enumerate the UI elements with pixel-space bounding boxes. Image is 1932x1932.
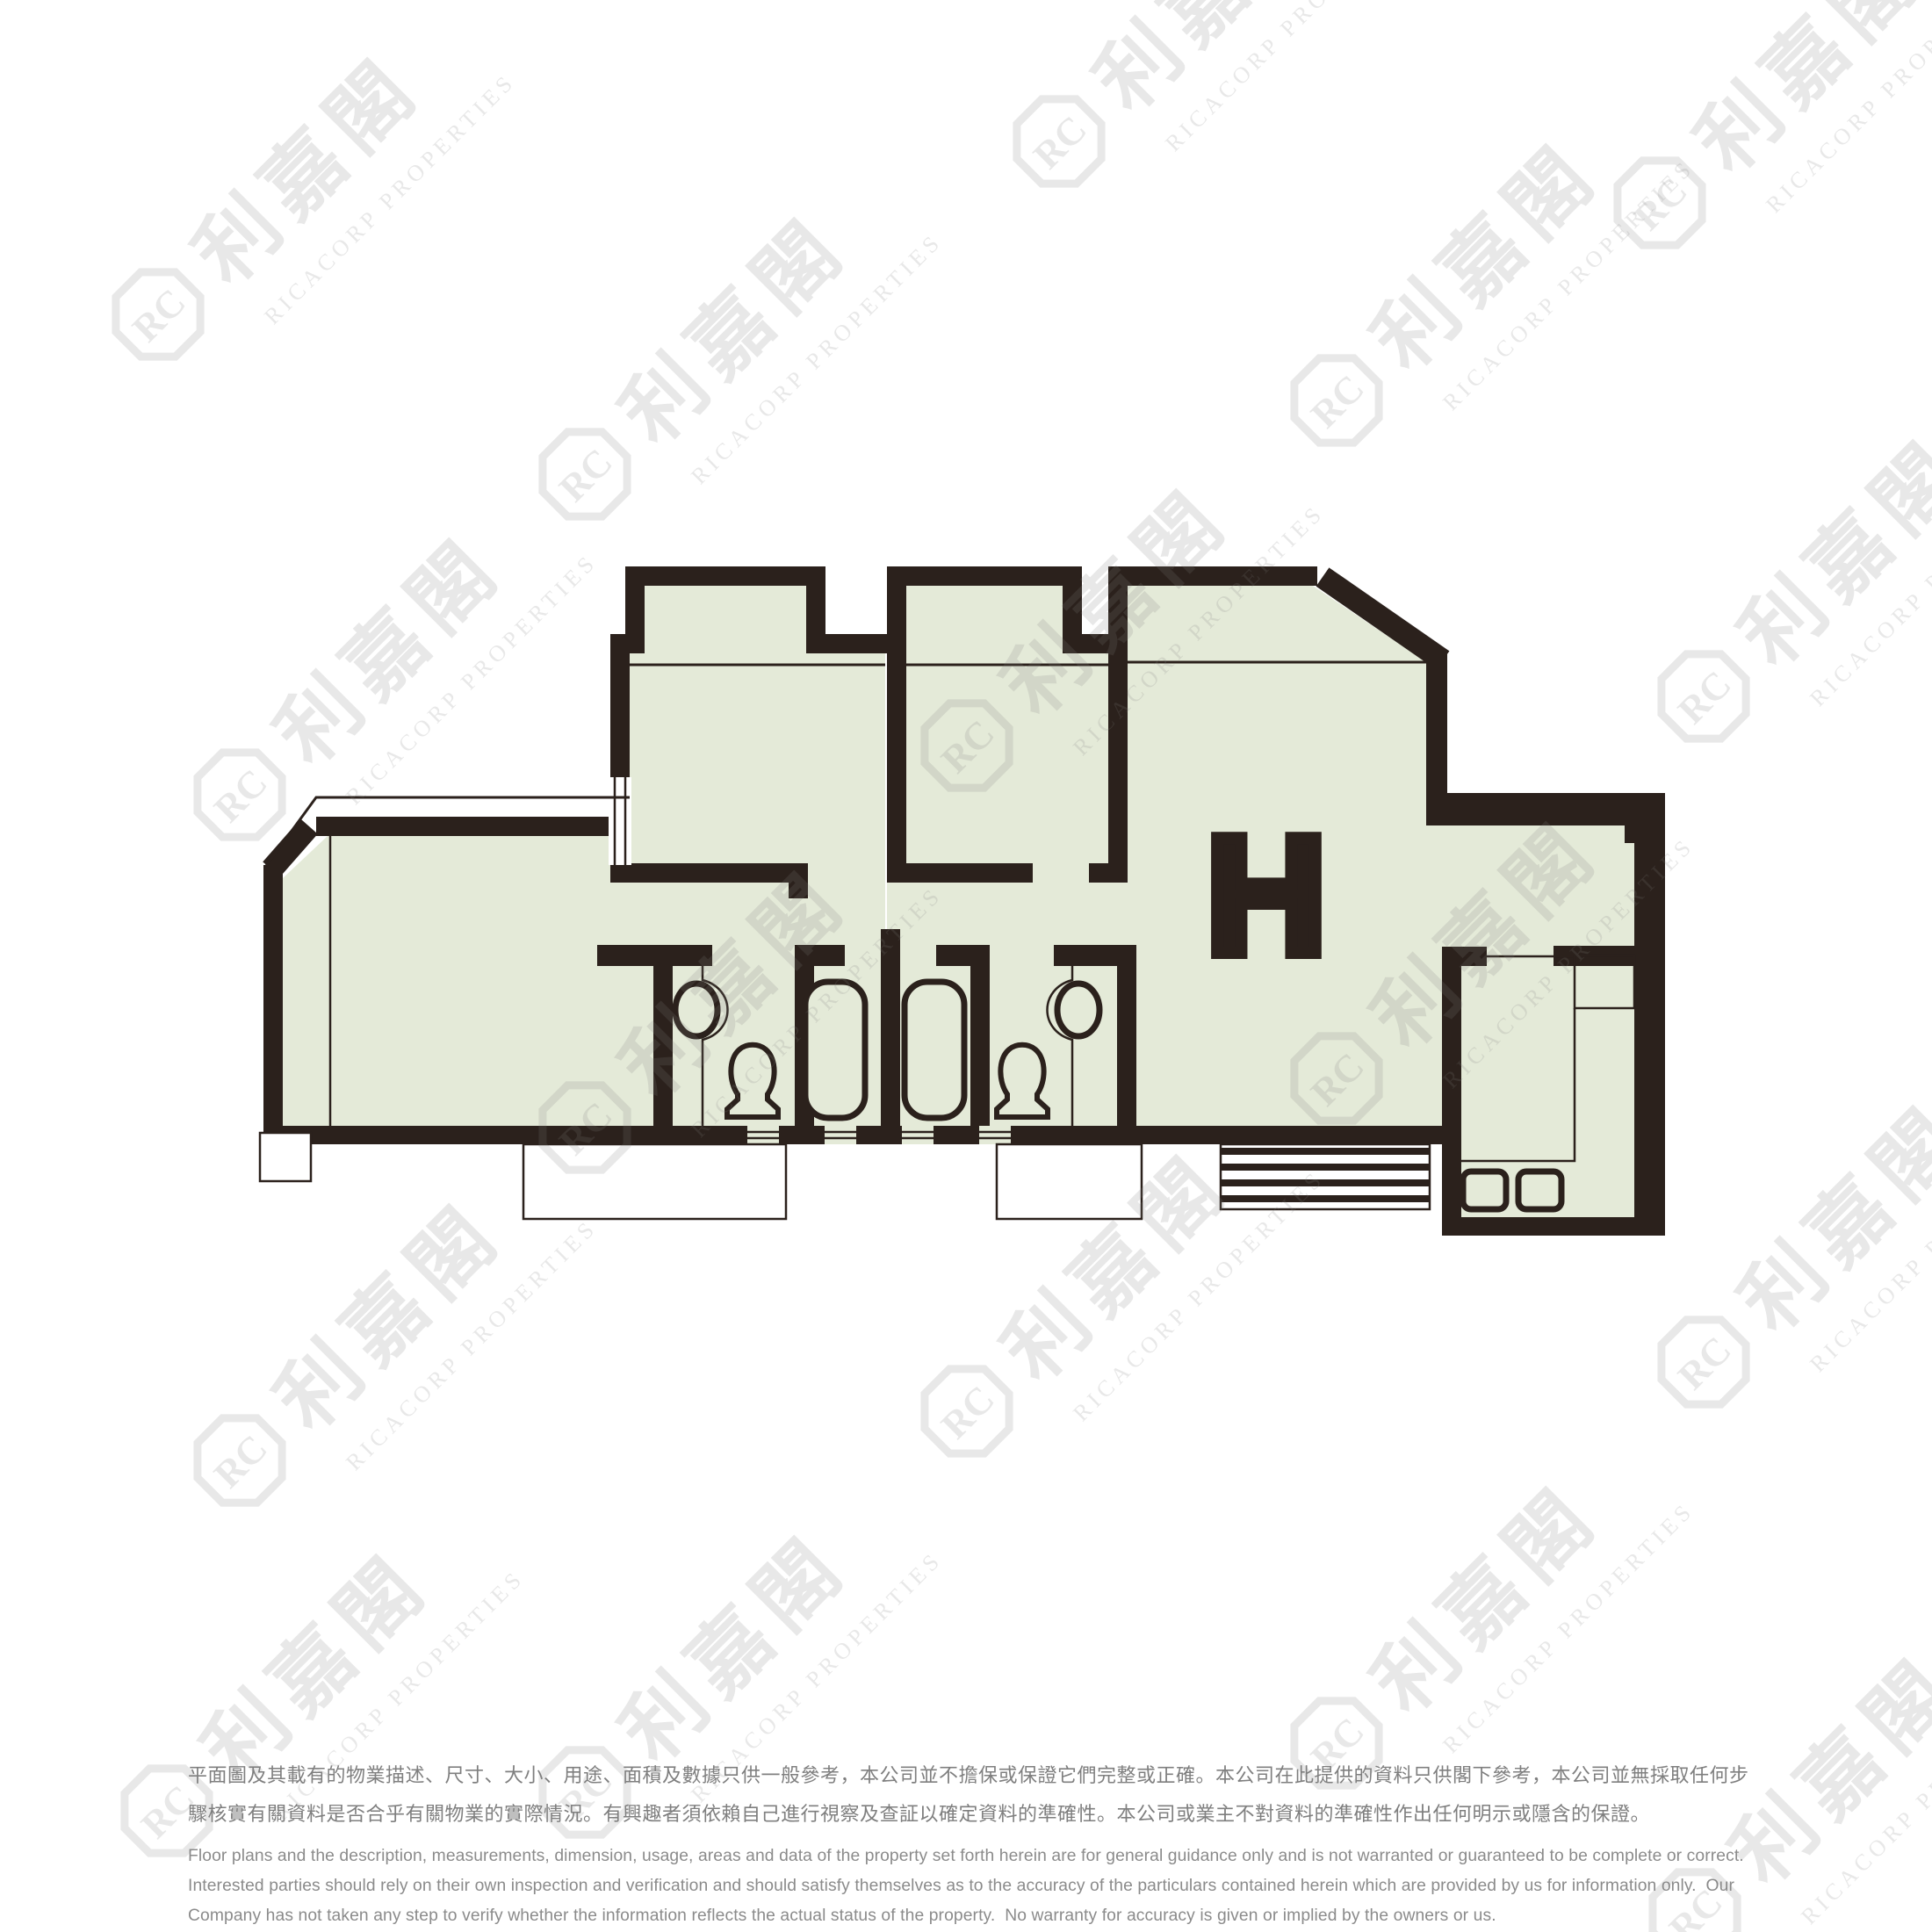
window-symbol [609, 777, 631, 865]
ac-plinth [260, 1133, 311, 1181]
toilet-icon [727, 1045, 778, 1117]
bathtub-icon [805, 982, 865, 1118]
disclaimer-chinese-line: 驟核實有關資料是否合乎有關物業的實際情況。有興趣者須依賴自己進行視察及查証以確定… [188, 1795, 1769, 1834]
disclaimer-chinese-line: 平面圖及其載有的物業描述、尺寸、大小、用途、面積及數據只供一般參考，本公司並不擔… [188, 1756, 1769, 1795]
disclaimer-english-line: Company has not taken any step to verify… [188, 1901, 1769, 1931]
disclaimer-chinese: 平面圖及其載有的物業描述、尺寸、大小、用途、面積及數據只供一般參考，本公司並不擔… [188, 1756, 1769, 1834]
wash-basin-icon [1057, 984, 1099, 1036]
floor-plan: H [0, 0, 1932, 1932]
balcony-platform [997, 1144, 1142, 1219]
unit-label: H [1206, 803, 1326, 989]
exterior-elements [260, 1133, 1430, 1219]
floorplan-page: { "plan": { "unit_label": "H", "colors":… [0, 0, 1932, 1932]
balcony-platform [523, 1144, 786, 1219]
bathtub-icon [905, 982, 964, 1118]
toilet-icon [997, 1045, 1048, 1117]
louver-vent [1221, 1144, 1430, 1209]
disclaimer-block: 平面圖及其載有的物業描述、尺寸、大小、用途、面積及數據只供一般參考，本公司並不擔… [188, 1756, 1769, 1931]
living-dining-floor [283, 836, 630, 1127]
disclaimer-english-line: Interested parties should rely on their … [188, 1871, 1769, 1901]
wash-basin-icon [675, 984, 717, 1036]
disclaimer-english-line: Floor plans and the description, measure… [188, 1842, 1769, 1871]
kitchen-sink-icon [1518, 1171, 1561, 1209]
kitchen-sink-icon [1463, 1171, 1506, 1209]
disclaimer-english: Floor plans and the description, measure… [188, 1842, 1769, 1931]
